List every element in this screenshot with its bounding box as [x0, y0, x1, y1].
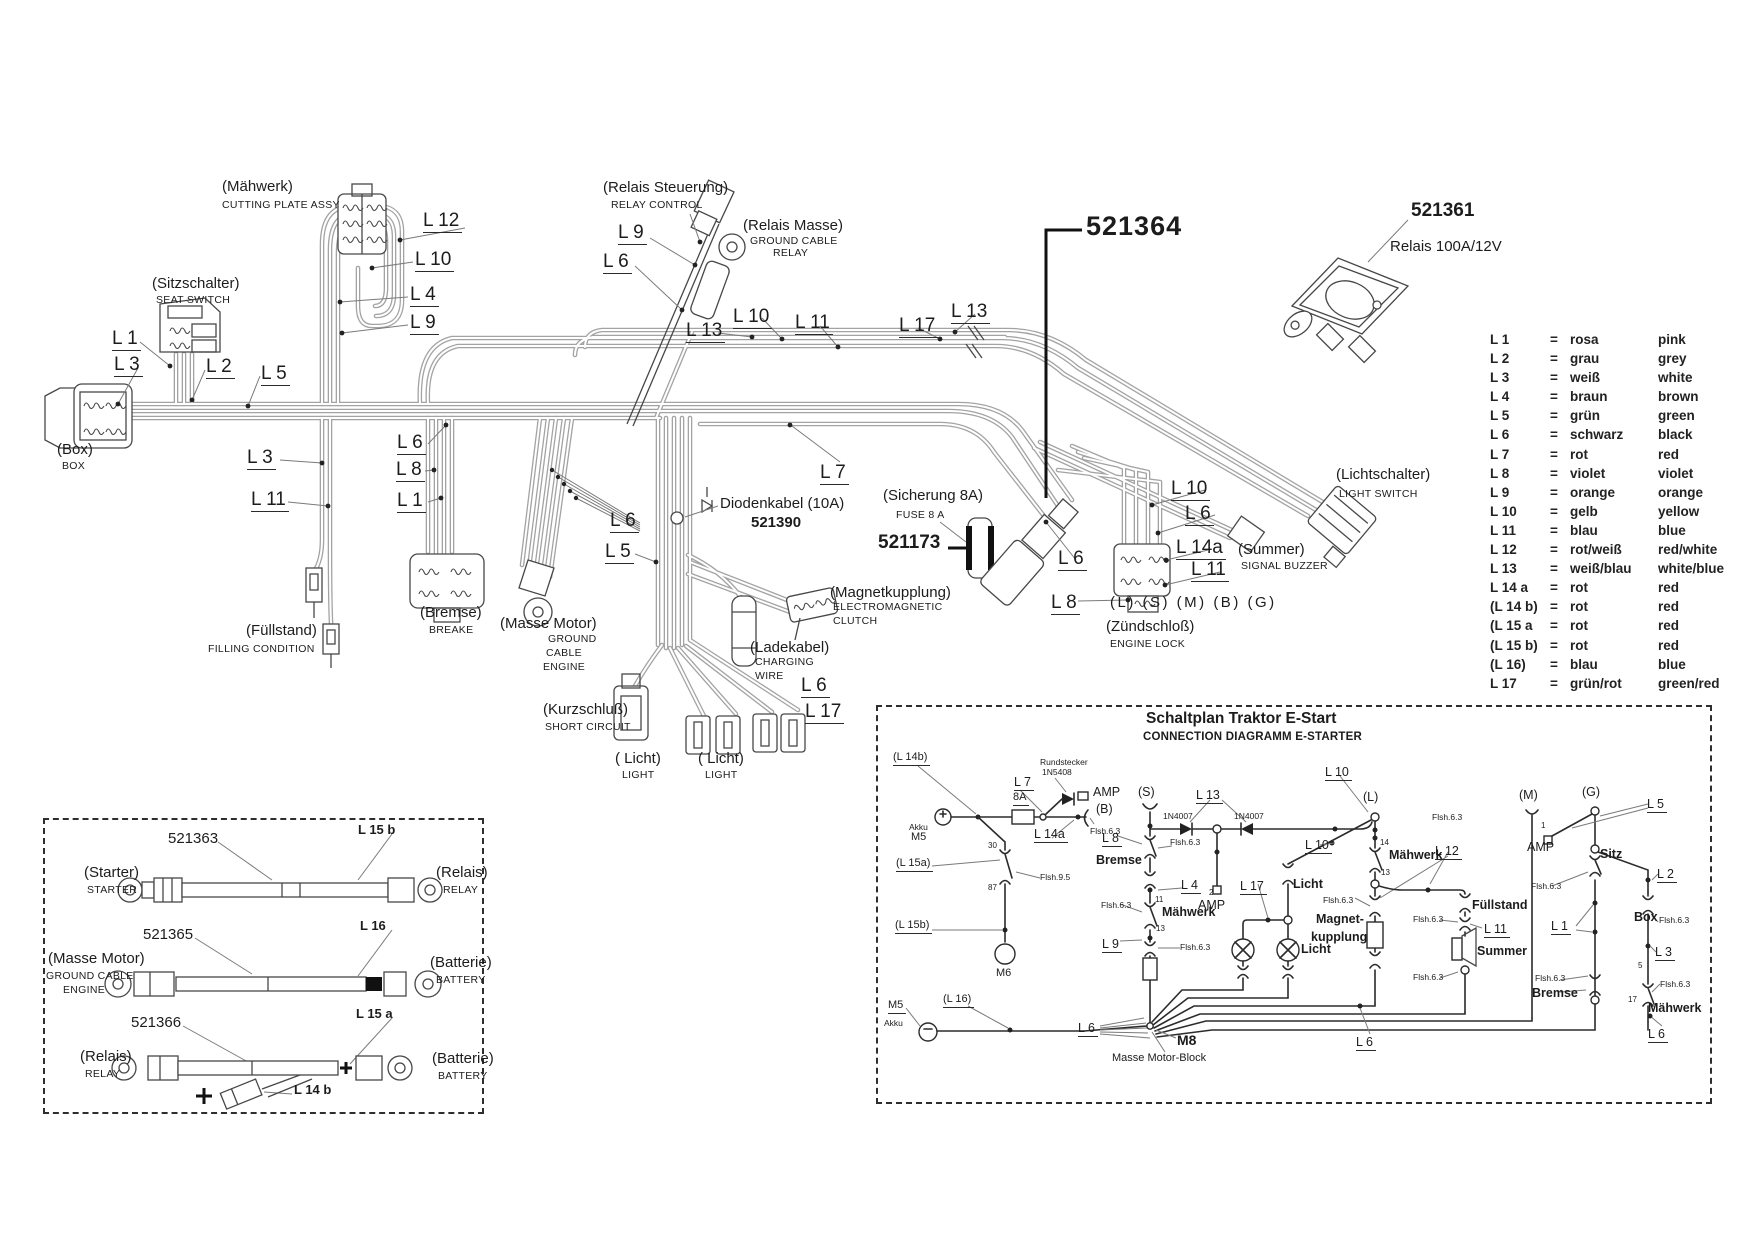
masse-motor-de: (Masse Motor)	[500, 616, 597, 632]
sch-licht-2: Licht	[1301, 943, 1331, 956]
ladekabel-en-1: CHARGING	[755, 657, 814, 668]
sch-l14a: L 14a	[1034, 828, 1068, 843]
sch-l9: L 9	[1102, 938, 1122, 953]
sch-akku-2: Akku	[884, 1019, 903, 1028]
wire-l3-b: L 3	[247, 448, 276, 470]
legend-row-19: L 17=grün/rotgreen/red	[1490, 676, 1754, 695]
wire-l9-t: L 9	[618, 223, 647, 245]
kurzschluss-en: SHORT CIRCUIT	[545, 722, 631, 733]
relay-caption: Relais 100A/12V	[1390, 239, 1502, 255]
sch-sitz: Sitz	[1600, 848, 1622, 861]
sch-l5: L 5	[1647, 798, 1667, 813]
wire-l1-b: L 1	[397, 491, 426, 513]
legend-row-13: L 13=weiß/blauwhite/blue	[1490, 561, 1754, 580]
cable3-left-de: (Relais)	[80, 1049, 132, 1065]
sch-term-g: (G)	[1582, 786, 1600, 799]
box-de: (Box)	[57, 442, 93, 458]
wire-l10-t: L 10	[733, 307, 772, 329]
legend-row-18: (L 16)=blaublue	[1490, 657, 1754, 676]
wire-l3-a: L 3	[114, 355, 143, 377]
sch-flsh-3: Flsh.6.3	[1101, 901, 1131, 910]
sicherung-en: FUSE 8 A	[896, 510, 945, 521]
sch-flsh-12: Flsh.6.3	[1660, 980, 1690, 989]
ladekabel-en-2: WIRE	[755, 671, 784, 682]
legend-row-11: L 11=blaublue	[1490, 523, 1754, 542]
sch-1n5408: 1N5408	[1042, 768, 1072, 777]
legend-row-4: L 4=braunbrown	[1490, 389, 1754, 408]
cable2-left-en-1: GROUND CABLE	[46, 971, 134, 982]
sch-30: 30	[988, 842, 997, 850]
cable3-part: 521366	[131, 1015, 181, 1031]
sch-1n4007-a: 1N4007	[1163, 812, 1193, 821]
legend-row-14: L 14 a=rotred	[1490, 580, 1754, 599]
sch-magnet-2: kupplung	[1311, 931, 1367, 944]
legend-row-8: L 8=violetviolet	[1490, 466, 1754, 485]
sch-l4: L 4	[1181, 879, 1201, 894]
sch-summer: Summer	[1477, 945, 1527, 958]
sch-m5-1: M5	[911, 832, 926, 844]
sch-flsh-5: Flsh.6.3	[1323, 896, 1353, 905]
box-en: BOX	[62, 461, 85, 472]
legend-row-3: L 3=weißwhite	[1490, 370, 1754, 389]
wire-l8-a: L 8	[396, 460, 425, 482]
cable1-left-en: STARTER	[87, 885, 137, 896]
sicherung-de: (Sicherung 8A)	[883, 488, 983, 504]
wire-l10-a: L 10	[415, 250, 454, 272]
cable1-right-de: (Relais)	[436, 865, 488, 881]
legend-row-17: (L 15 b)=rotred	[1490, 638, 1754, 657]
relais-masse-en-1: GROUND CABLE	[750, 236, 838, 247]
sch-l17: L 17	[1240, 880, 1267, 895]
wire-l17-t: L 17	[899, 316, 938, 338]
sch-l15b: (L 15b)	[895, 920, 932, 934]
sch-5: 5	[1638, 962, 1642, 970]
sch-l14b: (L 14b)	[893, 752, 930, 766]
wire-l6-a: L 6	[397, 433, 426, 455]
maehwerk-en: CUTTING PLATE ASSY	[222, 200, 340, 211]
legend-row-10: L 10=gelbyellow	[1490, 504, 1754, 523]
maehwerk-de: (Mähwerk)	[222, 179, 293, 195]
cable1-left-de: (Starter)	[84, 865, 139, 881]
sch-l6-mid: L 6	[1356, 1036, 1376, 1051]
wire-l5-a: L 5	[261, 364, 290, 386]
sch-bremse-2: Bremse	[1532, 987, 1578, 1000]
cable2-wire: L 16	[360, 919, 386, 933]
sch-term-b: (B)	[1096, 803, 1113, 816]
cable3-wire: L 15 a	[356, 1007, 393, 1021]
licht2-de: ( Licht)	[698, 751, 744, 767]
lichtschalter-en: LIGHT SWITCH	[1339, 489, 1418, 500]
wire-l6-t: L 6	[603, 252, 632, 274]
sch-l16: (L 16)	[943, 994, 974, 1008]
wire-l6-b: L 6	[610, 511, 639, 533]
masse-motor-en-3: ENGINE	[543, 662, 585, 673]
legend-row-12: L 12=rot/weißred/white	[1490, 542, 1754, 561]
sch-l10-lo: L 10	[1305, 839, 1332, 854]
zuendschloss-en: ENGINE LOCK	[1110, 639, 1185, 650]
sch-m8: M8	[1177, 1033, 1196, 1048]
sch-flsh-95: Flsh.9.5	[1040, 873, 1070, 882]
fuellstand-en: FILLING CONDITION	[208, 644, 315, 655]
sch-m6: M6	[996, 968, 1011, 980]
wire-l2: L 2	[206, 357, 235, 379]
legend-row-9: L 9=orangeorange	[1490, 485, 1754, 504]
sch-flsh-4: Flsh.6.3	[1180, 943, 1210, 952]
sch-13-a: 13	[1156, 925, 1165, 933]
wire-l6-r2: L 6	[1185, 504, 1214, 526]
legend-row-16: (L 15 a=rotred	[1490, 618, 1754, 637]
sch-flsh-10: Flsh.6.3	[1659, 916, 1689, 925]
diodenkabel-part: 521390	[751, 515, 801, 531]
legend-row-7: L 7=rotred	[1490, 447, 1754, 466]
magnetkupplung-de: (Magnetkupplung)	[830, 585, 951, 601]
relais-masse-de: (Relais Masse)	[743, 218, 843, 234]
sch-17: 17	[1628, 996, 1637, 1004]
wire-l13-t1: L 13	[686, 321, 725, 343]
cable1-wire: L 15 b	[358, 823, 395, 837]
wire-l5-b: L 5	[605, 542, 634, 564]
masse-motor-en-2: CABLE	[546, 648, 582, 659]
cable2-right-en: BATTERY	[436, 975, 486, 986]
relais-steuerung-en: RELAY CONTROL	[611, 200, 703, 211]
bremse-en: BREAKE	[429, 625, 473, 636]
sitzschalter-de: (Sitzschalter)	[152, 276, 240, 292]
relay-part: 521361	[1411, 201, 1474, 221]
sch-maehwerk-3: Mähwerk	[1648, 1002, 1702, 1015]
lichtschalter-de: (Lichtschalter)	[1336, 467, 1430, 483]
sch-flsh-6: Flsh.6.3	[1413, 915, 1443, 924]
sch-bremse-1: Bremse	[1096, 854, 1142, 867]
sch-87: 87	[988, 884, 997, 892]
wire-l11-r: L 11	[1191, 560, 1229, 582]
schematic-title-de: Schaltplan Traktor E-Start	[1146, 710, 1336, 728]
sch-l6-left: L 6	[1078, 1022, 1098, 1037]
wire-l10-r: L 10	[1171, 479, 1210, 501]
sch-l6-right: L 6	[1648, 1028, 1668, 1043]
sch-13-b: 13	[1381, 869, 1390, 877]
wire-l13-t2: L 13	[951, 302, 990, 324]
sch-fuellstand: Füllstand	[1472, 899, 1528, 912]
wire-l11-t: L 11	[795, 313, 833, 335]
sch-11: 11	[1155, 896, 1163, 904]
cable3-left-en: RELAY	[85, 1069, 120, 1080]
zuendschloss-de: (Zündschloß)	[1106, 619, 1194, 635]
cable3-right-de: (Batterie)	[432, 1051, 494, 1067]
cable1-part: 521363	[168, 831, 218, 847]
ladekabel-de: (Ladekabel)	[750, 640, 829, 656]
sch-magnet-1: Magnet-	[1316, 913, 1364, 926]
sch-flsh-9: Flsh.6.3	[1531, 882, 1561, 891]
sch-1n4007-b: 1N4007	[1234, 812, 1264, 821]
legend-row-2: L 2=graugrey	[1490, 351, 1754, 370]
sch-14: 14	[1380, 839, 1389, 847]
sch-m5-2: M5	[888, 1000, 906, 1014]
magnetkupplung-en-1: ELECTROMAGNETIC	[833, 602, 943, 613]
magnetkupplung-en-2: CLUTCH	[833, 616, 877, 627]
wire-l8-r: L 8	[1051, 593, 1080, 615]
kurzschluss-de: (Kurzschluß)	[543, 702, 628, 718]
cable2-part: 521365	[143, 927, 193, 943]
wire-l6-r1: L 6	[1058, 549, 1087, 571]
sch-flsh-7: Flsh.6.3	[1413, 973, 1443, 982]
wire-l17-c: L 17	[805, 702, 844, 724]
sch-rundstecker: Rundstecker	[1040, 758, 1088, 767]
legend-row-6: L 6=schwarzblack	[1490, 427, 1754, 446]
wire-l7: L 7	[820, 463, 849, 485]
wire-l9-a: L 9	[410, 313, 439, 335]
cable3-right-en: BATTERY	[438, 1071, 488, 1082]
sch-l12: L 12	[1435, 845, 1462, 860]
sch-amp-3: AMP	[1527, 841, 1554, 854]
wire-l12: L 12	[423, 211, 462, 233]
sch-l8: L 8	[1102, 832, 1122, 847]
legend-row-1: L 1=rosapink	[1490, 332, 1754, 351]
sch-masse-block: Masse Motor-Block	[1112, 1053, 1206, 1065]
cable1-right-en: RELAY	[443, 885, 478, 896]
sch-amp-2: AMP	[1198, 899, 1225, 912]
wiring-diagram-page: Schaltplan Traktor E-Start CONNECTION DI…	[0, 0, 1754, 1240]
licht1-de: ( Licht)	[615, 751, 661, 767]
sch-amp-1: AMP	[1093, 786, 1120, 799]
sch-l15a: (L 15a)	[896, 858, 933, 872]
cable2-left-de: (Masse Motor)	[48, 951, 145, 967]
relais-masse-en-2: RELAY	[773, 248, 808, 259]
sch-l7: L 7	[1014, 776, 1034, 791]
sch-term-m: (M)	[1519, 789, 1538, 802]
sch-l10-up: L 10	[1325, 766, 1352, 781]
relais-steuerung-de: (Relais Steuerung)	[603, 180, 728, 196]
licht1-en: LIGHT	[622, 770, 654, 781]
legend-row-5: L 5=grüngreen	[1490, 408, 1754, 427]
sch-fuse-8a: 8A	[1013, 792, 1029, 806]
sch-l13: L 13	[1196, 789, 1223, 804]
ignition-terminals: (L) (S) (M) (B) (G)	[1110, 595, 1277, 611]
licht2-en: LIGHT	[705, 770, 737, 781]
wire-l11-a: L 11	[251, 490, 289, 512]
cable2-left-en-2: ENGINE	[63, 985, 105, 996]
sitzschalter-en: SEAT SWITCH	[156, 295, 230, 306]
cable3-branch-wire: L 14 b	[294, 1083, 331, 1097]
fuse-part: 521173	[878, 533, 940, 553]
summer-en: SIGNAL BUZZER	[1241, 561, 1328, 572]
legend-row-15: (L 14 b)=rotred	[1490, 599, 1754, 618]
bremse-de: (Bremse)	[420, 605, 482, 621]
sch-box: Box	[1634, 911, 1658, 924]
sch-flsh-2: Flsh.6.3	[1170, 838, 1200, 847]
sch-term-l: (L)	[1363, 791, 1378, 804]
diodenkabel-label: Diodenkabel (10A)	[720, 496, 844, 512]
assembly-part: 521364	[1086, 212, 1182, 240]
sch-1: 1	[1541, 822, 1545, 830]
wire-l14a-r: L 14a	[1176, 538, 1226, 560]
schematic-box	[876, 705, 1712, 1104]
schematic-title-en: CONNECTION DIAGRAMM E-STARTER	[1143, 731, 1362, 743]
sch-l1: L 1	[1551, 920, 1571, 935]
masse-motor-en-1: GROUND	[548, 634, 596, 645]
sch-flsh-8: Flsh.6.3	[1432, 813, 1462, 822]
wire-l4-a: L 4	[410, 285, 439, 307]
sch-l2: L 2	[1657, 868, 1677, 883]
sch-2: 2	[1209, 889, 1213, 897]
sch-l11: L 11	[1484, 923, 1510, 938]
wire-l6-c: L 6	[801, 676, 830, 698]
sch-flsh-11: Flsh.6.3	[1535, 974, 1565, 983]
summer-de: (Summer)	[1238, 542, 1305, 558]
sch-licht-1: Licht	[1293, 878, 1323, 891]
fuellstand-de: (Füllstand)	[246, 623, 317, 639]
sch-term-s: (S)	[1138, 786, 1155, 799]
wire-l1-a: L 1	[112, 329, 141, 351]
wire-color-legend: L 1=rosapinkL 2=graugreyL 3=weißwhiteL 4…	[1490, 332, 1754, 695]
sch-l3: L 3	[1655, 946, 1675, 961]
cable2-right-de: (Batterie)	[430, 955, 492, 971]
